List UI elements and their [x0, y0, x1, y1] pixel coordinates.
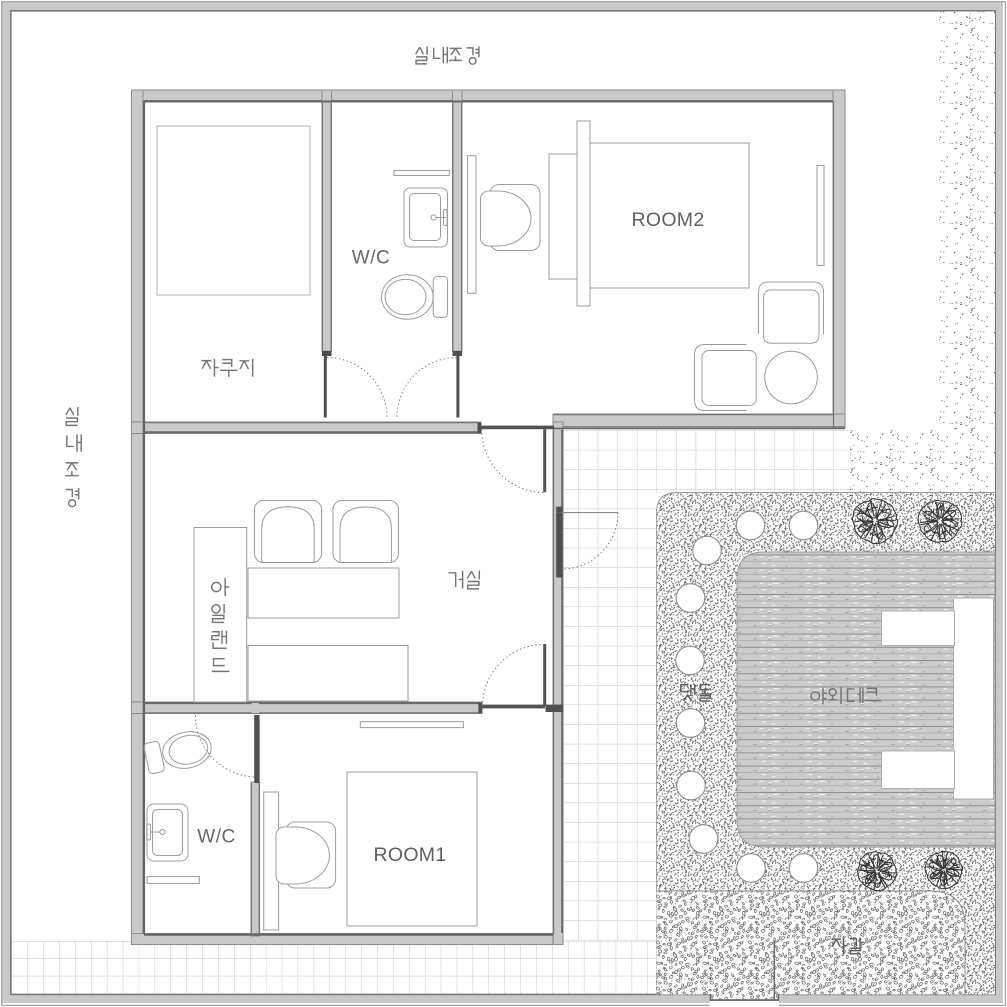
- svg-text:ROOM2: ROOM2: [631, 209, 704, 231]
- svg-text:W/C: W/C: [352, 248, 390, 269]
- svg-text:W/C: W/C: [197, 827, 235, 848]
- svg-text:ROOM1: ROOM1: [373, 844, 446, 866]
